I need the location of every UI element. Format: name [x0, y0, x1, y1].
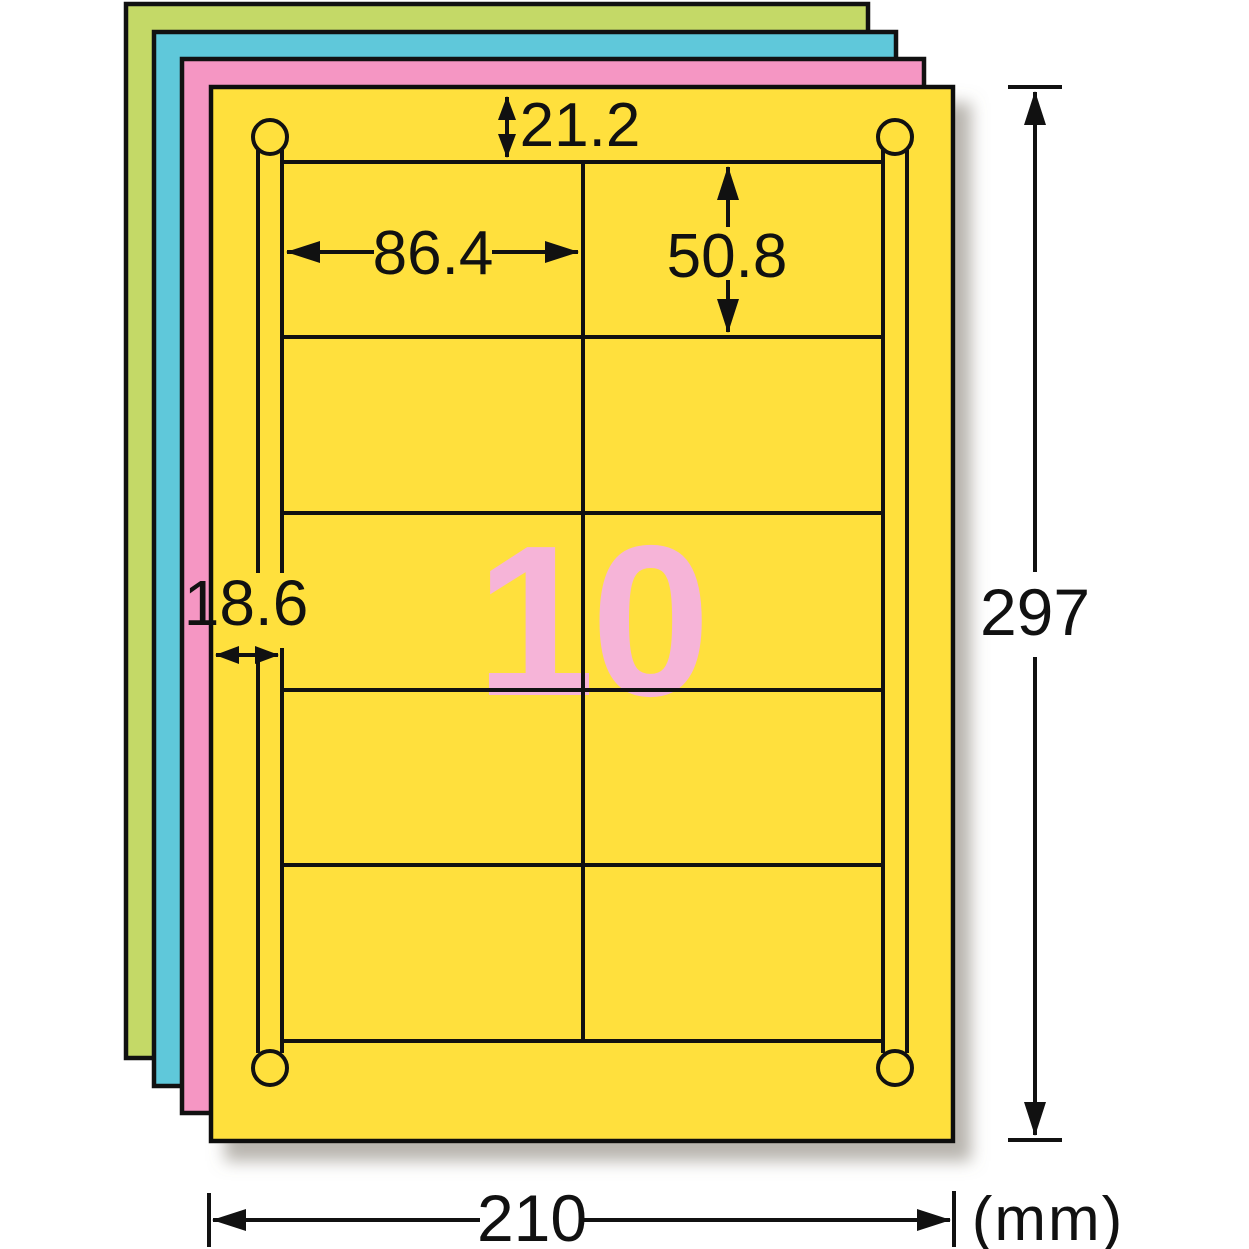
- corner-knob-top-left: [253, 120, 287, 154]
- corner-knob-bottom-left: [253, 1051, 287, 1085]
- label-height-value: 50.8: [667, 222, 788, 291]
- label-width-value: 86.4: [373, 219, 494, 288]
- label-sheet-diagram: 10: [0, 0, 1249, 1249]
- label-count-number: 10: [475, 500, 706, 741]
- unit-label: (mm): [972, 1185, 1125, 1249]
- side-margin-value: 18.6: [184, 567, 309, 639]
- corner-knob-bottom-right: [878, 1051, 912, 1085]
- diagram-svg: 10: [0, 0, 1249, 1249]
- top-margin-value: 21.2: [520, 91, 641, 160]
- sheet-height-value: 297: [980, 575, 1090, 649]
- sheet-width-value: 210: [477, 1181, 587, 1249]
- corner-knob-top-right: [878, 120, 912, 154]
